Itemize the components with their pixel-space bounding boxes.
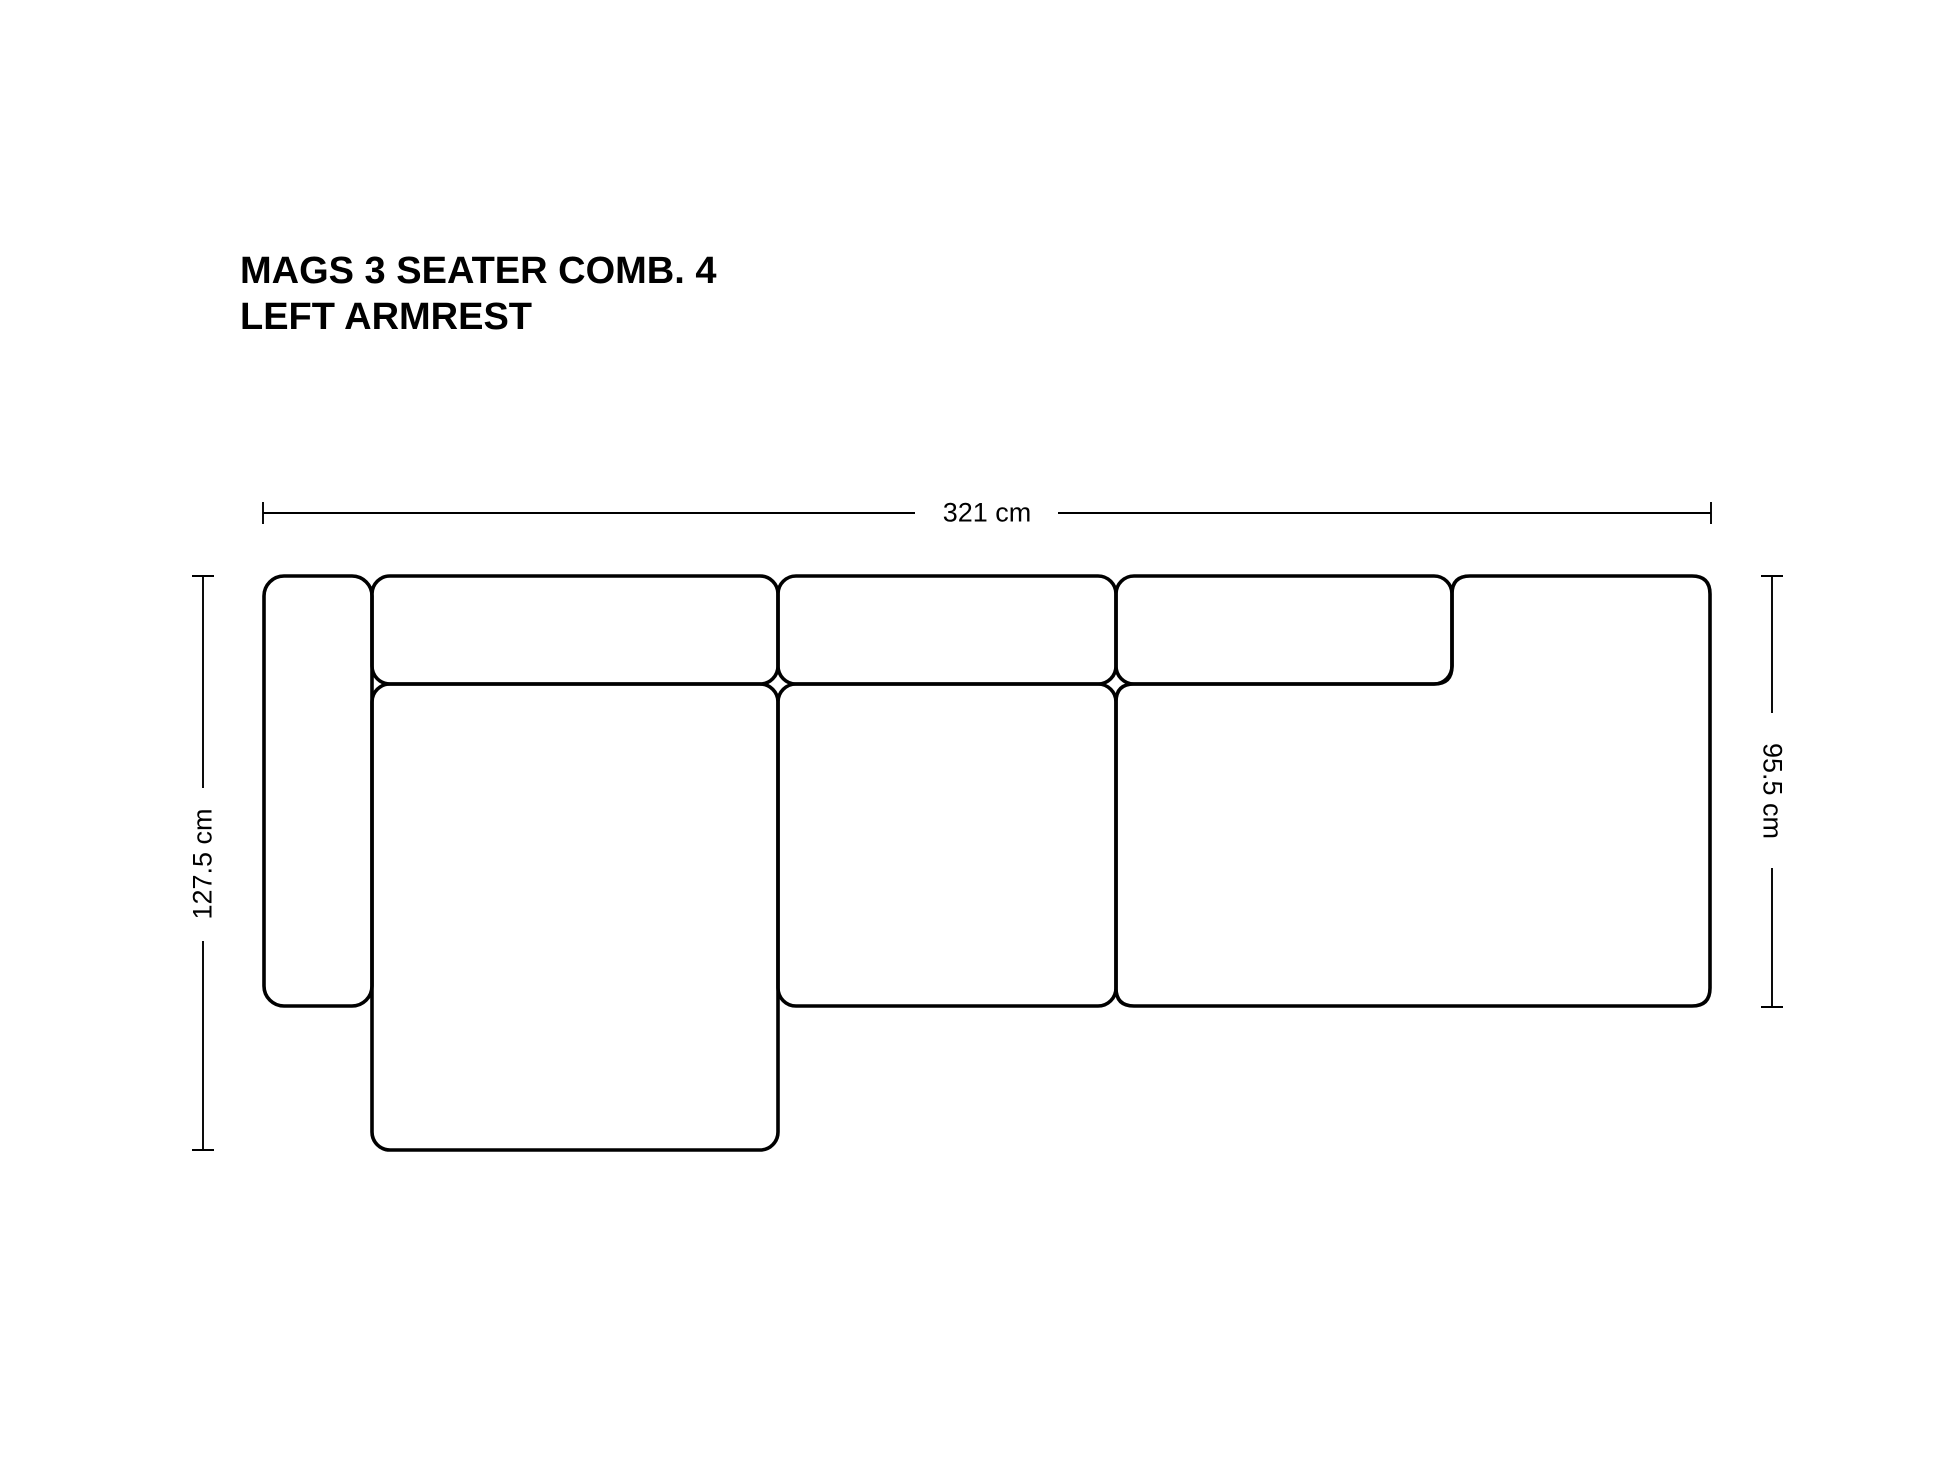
total-depth-dimension-label: 127.5 cm (188, 808, 219, 919)
width-dimension-label: 321 cm (943, 498, 1032, 529)
back-cushion-1-outline (372, 576, 778, 684)
middle-seat-outline (778, 684, 1116, 1006)
module-depth-dimension-label: 95.5 cm (1757, 743, 1788, 839)
right-end-module-outline (1116, 576, 1710, 1006)
product-dimension-diagram: MAGS 3 SEATER COMB. 4 LEFT ARMREST (0, 0, 1946, 1464)
back-cushion-3-outline (1116, 576, 1452, 684)
chaise-seat-outline (372, 684, 778, 1150)
sofa-top-view-drawing (0, 0, 1946, 1464)
left-armrest-outline (264, 576, 372, 1006)
back-cushion-2-outline (778, 576, 1116, 684)
